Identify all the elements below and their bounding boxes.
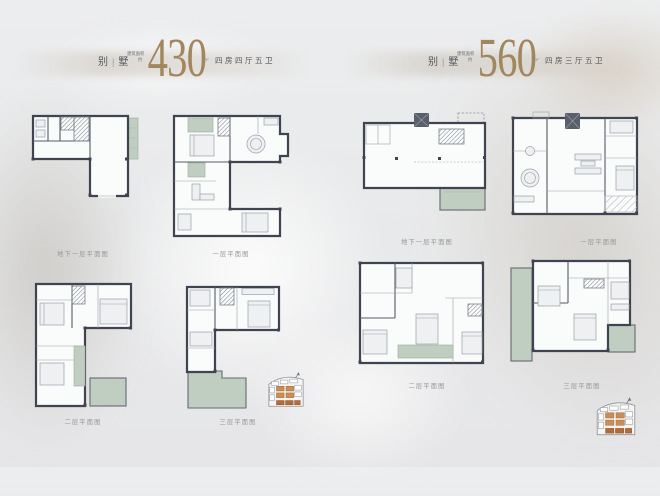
caption-430-basement: 地下一层平面图 — [57, 250, 109, 259]
plan-560-third-floor — [508, 248, 653, 374]
stairs — [72, 286, 85, 304]
layout-text: 四房四厅五卫 — [215, 55, 275, 66]
area-approx: 约 — [468, 56, 472, 62]
area-value: 430 — [148, 32, 195, 87]
stairs — [584, 279, 604, 288]
title-part1: 别 — [98, 57, 109, 68]
courtyard-green — [440, 188, 485, 210]
walls — [364, 123, 485, 188]
north-arrow-icon — [296, 372, 300, 378]
stairs — [439, 129, 464, 144]
plan-560-basement — [352, 100, 492, 233]
caption-560-third: 三层平面图 — [564, 382, 601, 391]
caption-430-second: 二层平面图 — [65, 418, 102, 427]
plan-430-basement — [28, 106, 140, 241]
area-unit: m² — [203, 58, 209, 63]
site-map-560 — [592, 396, 640, 440]
stairs — [468, 304, 482, 316]
north-arrow-icon — [626, 397, 631, 403]
title-part2: 墅 — [448, 57, 459, 68]
roof-terrace — [90, 378, 126, 406]
villa-title: 别|墅 — [428, 53, 459, 68]
site-map-430 — [263, 371, 309, 411]
title-part1: 别 — [428, 57, 439, 68]
terrace — [128, 118, 138, 159]
plan-560-second-floor — [350, 258, 492, 376]
terrace-green — [398, 345, 453, 358]
caption-560-basement: 地下一层平面图 — [401, 238, 453, 247]
elevator — [414, 113, 429, 127]
area-approx: 约 — [138, 56, 142, 62]
layout-text: 四房三厅五卫 — [545, 55, 605, 66]
roof-terrace-right — [608, 325, 635, 352]
caption-560-first: 一层平面图 — [581, 238, 618, 247]
terrace-pergola — [605, 196, 637, 212]
pillars — [214, 329, 281, 373]
void-green — [74, 346, 85, 386]
title-divider: | — [112, 57, 115, 67]
title-divider: | — [442, 57, 445, 67]
elevator — [565, 113, 580, 129]
caption-430-first: 一层平面图 — [213, 250, 250, 259]
stairs — [218, 118, 230, 136]
roof-terrace-left — [511, 268, 532, 361]
area-unit: m² — [533, 58, 539, 63]
caption-430-third: 三层平面图 — [220, 418, 257, 427]
area-value: 560 — [478, 32, 525, 87]
pillars — [229, 161, 282, 211]
title-part2: 墅 — [118, 57, 129, 68]
stairs — [220, 288, 234, 305]
villa-title: 别|墅 — [98, 53, 129, 68]
plan-430-second-floor — [28, 276, 143, 416]
roof-terrace — [188, 371, 246, 408]
caption-560-second: 二层平面图 — [409, 382, 446, 391]
plan-430-first-floor — [168, 106, 303, 246]
plan-560-first-floor — [500, 96, 648, 238]
